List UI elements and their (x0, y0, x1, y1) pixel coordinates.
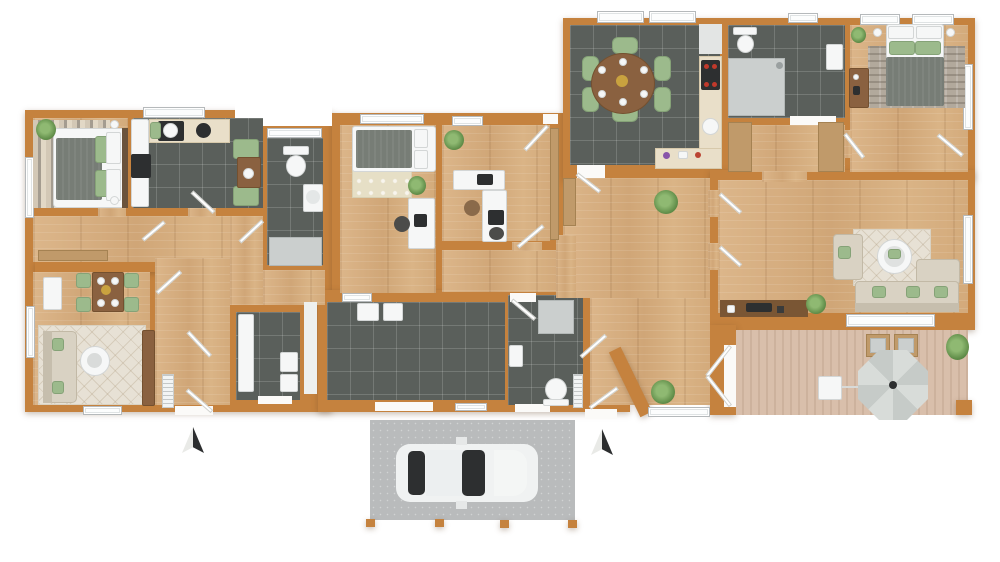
bedroom1-headboard (122, 128, 128, 208)
hall-plant-1 (654, 190, 678, 214)
master-lamp-1 (873, 28, 882, 37)
bedroom2-pillow-2 (414, 150, 428, 169)
dining-sink (702, 118, 719, 135)
family-plate-1 (97, 277, 105, 285)
bedroom2-chair (394, 216, 410, 232)
opening-hall-living-2 (708, 243, 719, 270)
dining-plate-4 (619, 98, 627, 106)
floor-hall-left-3 (263, 270, 325, 305)
bath1-shower (269, 237, 322, 266)
window-storage-bottom (455, 403, 487, 411)
bedroom2-monitor (414, 214, 427, 227)
master-dresser-deco-2 (853, 86, 860, 95)
opening-office-door (512, 242, 542, 251)
utility-box-2 (280, 374, 298, 392)
bath3-shower (538, 300, 574, 334)
floor-hall-center-3 (556, 235, 576, 298)
dining-chair-right-2 (654, 87, 671, 112)
family-centerpiece (101, 285, 111, 295)
bedroom2-blanket (356, 130, 412, 168)
bath2-toilet-tank (733, 27, 757, 35)
living-deco-1 (727, 305, 735, 313)
family-cabinet (43, 277, 62, 310)
family-chair-3 (124, 273, 139, 288)
storage-box-2 (383, 303, 403, 321)
family-sofa-pillow-1 (52, 338, 64, 351)
family-plate-3 (97, 299, 105, 307)
family-sofa-back (43, 331, 52, 403)
bath2-toilet-bowl (737, 35, 754, 53)
living-tv (746, 303, 772, 312)
floor-hall-under-office (442, 250, 556, 292)
family-plate-4 (111, 299, 119, 307)
master-plant (851, 27, 866, 43)
bedroom1-pillow-white-1 (106, 132, 121, 164)
living-plant (806, 294, 826, 314)
floor-storage (327, 302, 505, 400)
utility-box-1 (280, 352, 298, 372)
master-pillow-green-2 (915, 41, 941, 55)
bath1-toilet-tank (283, 146, 309, 155)
car-mirror-1 (456, 437, 467, 445)
entrance-arrow-center (591, 429, 613, 455)
living-chaise-pillow (838, 246, 851, 259)
wall-family-top (35, 262, 158, 272)
bedroom1-plant (36, 119, 56, 140)
window-family-bottom (83, 406, 122, 415)
window-bath2-top (788, 13, 818, 23)
door-storage (375, 402, 433, 411)
corridor-radiator (162, 374, 174, 408)
bedroom2-plant (408, 176, 426, 195)
living-sofa-back (855, 303, 959, 312)
car-rear-window (408, 451, 425, 495)
living-pillow-1 (872, 286, 886, 298)
master-pillow-white-1 (888, 26, 914, 39)
family-console (142, 330, 155, 406)
hall-plant-2 (651, 380, 675, 404)
dining-chair-top (612, 37, 638, 54)
floor-plan (0, 0, 1000, 562)
family-chair-4 (124, 297, 139, 312)
living-tray-item (888, 249, 901, 259)
office-chair-2 (489, 227, 504, 240)
dining-chair-right-1 (654, 56, 671, 81)
family-chair-1 (76, 273, 91, 288)
cooktop-burner-2 (712, 64, 717, 69)
family-plate-2 (111, 277, 119, 285)
dining-centerpiece (616, 75, 628, 87)
utility-duct (304, 302, 317, 394)
window-family-left (26, 306, 35, 358)
family-tray (87, 353, 102, 368)
cooktop-burner-1 (704, 64, 709, 69)
kitchen-pot (196, 123, 211, 138)
deck-plant (946, 334, 969, 360)
door-utility (258, 396, 292, 404)
office-plant (444, 130, 464, 150)
hall-wardrobe (563, 178, 576, 226)
bath3-toilet-tank (543, 399, 569, 406)
dining-plate-5 (598, 90, 606, 98)
office-chair-1 (464, 200, 480, 216)
family-sideboard (38, 250, 108, 261)
car-hood (494, 450, 527, 496)
master-dresser-deco-1 (853, 74, 859, 80)
window-bath1-top (267, 128, 322, 138)
utility-cabinet (238, 314, 254, 392)
window-office-top (452, 116, 483, 126)
office-pc (488, 210, 504, 225)
master-blanket (886, 57, 944, 106)
kitchen-plate (243, 168, 254, 179)
counter-item-1 (663, 152, 670, 159)
closet-wardrobe-1 (728, 122, 752, 172)
car-roof (426, 450, 463, 496)
door-office-exterior (543, 114, 558, 124)
kitchen-sink-bowl (163, 123, 178, 138)
opening-hall-living-1 (708, 190, 719, 217)
slider-living-deck (846, 314, 935, 327)
kitchen-bench-2 (233, 186, 259, 206)
bath3-toilet-bowl (545, 378, 567, 401)
bedroom1-lamp-2 (110, 196, 119, 205)
kitchen-bench-1 (233, 139, 259, 159)
bath1-sink-basin (306, 190, 320, 204)
kitchen-oven (131, 154, 151, 178)
parasol-pole (889, 381, 897, 389)
bedroom1-lamp-1 (110, 120, 119, 129)
office-laptop (477, 174, 493, 185)
deck-corner-post (956, 400, 972, 415)
floor-deck (736, 330, 968, 415)
entrance-arrow-left (182, 427, 204, 453)
kitchen-cutting-board (150, 122, 161, 139)
cooktop-burner-3 (704, 82, 709, 87)
carport-post-3 (500, 520, 509, 528)
living-pillow-3 (934, 286, 948, 298)
master-lamp-2 (946, 28, 955, 37)
family-chair-2 (76, 297, 91, 312)
living-deco-2 (777, 306, 784, 313)
door-entrance-center (585, 409, 617, 419)
bath2-shower-head (776, 62, 783, 69)
deck-side-table (818, 376, 842, 400)
counter-item-3 (695, 152, 701, 158)
bedroom2-pillow-1 (414, 129, 428, 148)
car-mirror-2 (456, 501, 467, 509)
floor-hall-left-2 (230, 216, 263, 305)
cooktop-burner-4 (712, 82, 717, 87)
dining-plate-1 (619, 58, 627, 66)
closet-wardrobe-2 (818, 122, 844, 172)
storage-box-1 (357, 303, 379, 321)
living-pillow-2 (906, 286, 920, 298)
dining-plate-2 (640, 66, 648, 74)
window-bedroom2-bottom (342, 293, 372, 302)
carport-post-4 (568, 520, 577, 528)
window-dining-top-1 (597, 11, 644, 23)
opening-bedroom1-door (98, 208, 126, 217)
family-sofa-pillow-2 (52, 381, 64, 394)
dining-fridge (699, 24, 722, 54)
dining-plate-6 (598, 66, 606, 74)
floor-hall-center-1 (563, 178, 710, 298)
bath1-toilet-bowl (286, 155, 306, 177)
window-bedroom2-top (360, 114, 424, 124)
carport-post-2 (435, 519, 444, 527)
counter-item-2 (678, 151, 688, 159)
office-wardrobe (550, 128, 559, 240)
opening-closet-living (762, 171, 807, 182)
window-kitchen-top (143, 107, 205, 118)
window-dining-top-2 (649, 11, 696, 23)
carport-post-1 (366, 519, 375, 527)
master-pillow-white-2 (916, 26, 942, 39)
bath2-cabinet (826, 44, 843, 70)
bath3-shelf (509, 345, 523, 367)
dining-plate-3 (640, 90, 648, 98)
window-living-right (963, 215, 973, 284)
master-pillow-green-1 (889, 41, 915, 55)
window-hall-bottom (648, 407, 710, 417)
car-windshield (462, 450, 485, 496)
bath3-radiator (573, 374, 583, 408)
